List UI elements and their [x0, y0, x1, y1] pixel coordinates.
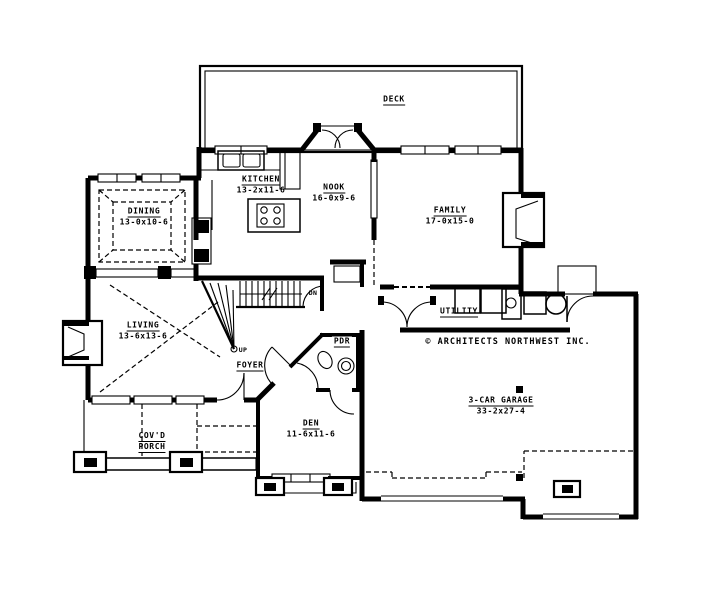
- stairs-down-label: DN: [309, 288, 317, 298]
- utility-label: UTILITY: [440, 307, 478, 318]
- exterior-walls: [63, 123, 544, 404]
- covered-porch: [74, 400, 258, 472]
- kitchen-label: KITCHEN 13-2x11-6: [237, 175, 286, 196]
- stairs: [196, 278, 324, 352]
- floor-plan: DECK KITCHEN 13-2x11-6 NOOK 16-0x9-6 FAM…: [0, 0, 720, 589]
- living-label: LIVING 13-6x13-6: [119, 321, 168, 342]
- family-label: FAMILY 17-0x15-0: [426, 206, 475, 227]
- copyright-label: © ARCHITECTS NORTHWEST INC.: [425, 337, 590, 347]
- deck-outline: [200, 66, 522, 152]
- porch-label: COV'D PORCH: [138, 431, 165, 453]
- nook-family-wall: [371, 148, 377, 285]
- deck-label: DECK: [383, 95, 405, 106]
- foyer-label: FOYER: [236, 361, 263, 372]
- dining-label: DINING 13-0x10-6: [120, 207, 169, 228]
- plan-drawing: [0, 0, 720, 589]
- pdr-label: PDR: [332, 337, 352, 348]
- utility-room: [330, 262, 596, 330]
- nook-label: NOOK 16-0x9-6: [312, 183, 355, 204]
- den-label: DEN 11-6x11-6: [287, 419, 336, 440]
- den-walls: [256, 390, 362, 495]
- stairs-up-label: UP: [239, 345, 247, 355]
- garage-label: 3-CAR GARAGE 33-2x27-4: [469, 396, 534, 417]
